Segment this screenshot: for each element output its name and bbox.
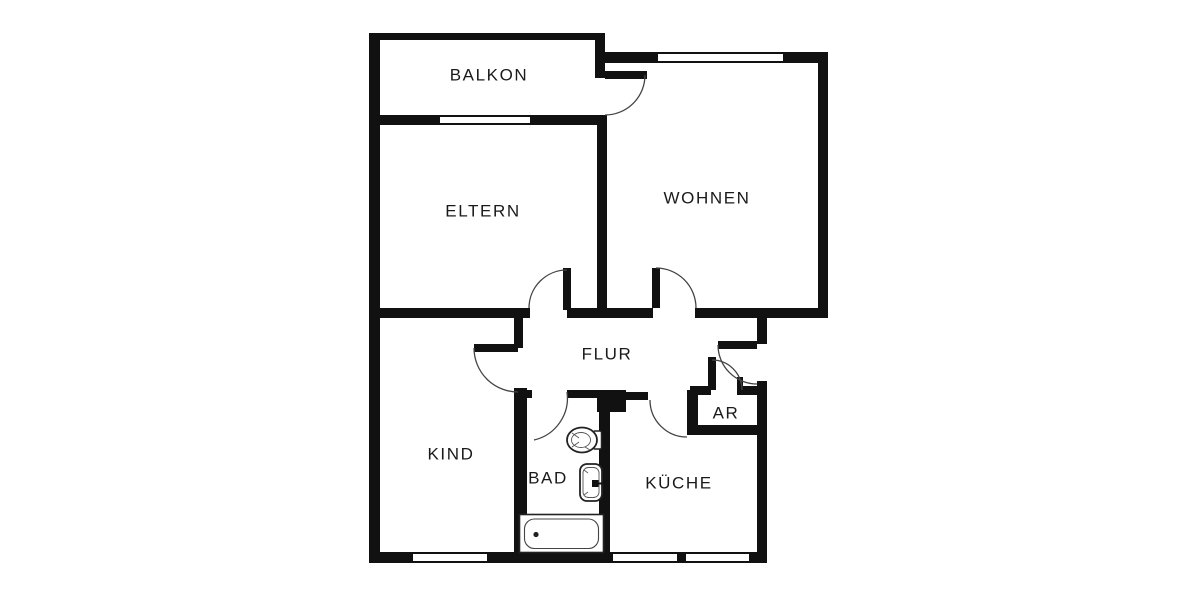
bathtub-drain: [533, 532, 538, 537]
bathtub: [520, 515, 604, 553]
sink: [580, 464, 604, 501]
doors-and-fixtures-layer: [0, 0, 1200, 600]
balkon-door-leaf: [605, 71, 647, 79]
kind-door-arc: [474, 348, 518, 392]
room-label-kind: KIND: [427, 446, 474, 463]
room-label-ar: AR: [713, 405, 740, 422]
room-label-balkon: BALKON: [450, 67, 529, 84]
eltern-door-leaf: [563, 268, 571, 310]
wohnen-door-arc: [656, 268, 696, 308]
room-label-bad: BAD: [528, 470, 568, 487]
sink-tap: [592, 480, 599, 487]
bathtub-outline: [520, 515, 604, 553]
toilet: [567, 428, 602, 453]
ar-door-arc: [712, 360, 742, 390]
room-label-flur: FLUR: [582, 346, 633, 363]
entrance-door-leaf: [718, 341, 757, 349]
wohnen-door-leaf: [652, 268, 660, 308]
entrance-door-arc: [718, 345, 757, 384]
door-leaves: [474, 71, 757, 390]
bad-door-arc: [534, 392, 567, 440]
room-label-kueche: KÜCHE: [645, 475, 713, 492]
balkon-door-arc: [605, 75, 645, 115]
room-label-eltern: ELTERN: [445, 203, 520, 220]
kueche-door-arc: [650, 400, 687, 437]
floorplan-canvas: BALKON ELTERN WOHNEN FLUR KIND BAD KÜCHE…: [0, 0, 1200, 600]
ar-door-leaf: [708, 357, 716, 390]
room-label-wohnen: WOHNEN: [663, 190, 750, 207]
eltern-door-arc: [529, 270, 567, 308]
kind-door-leaf: [474, 344, 518, 352]
